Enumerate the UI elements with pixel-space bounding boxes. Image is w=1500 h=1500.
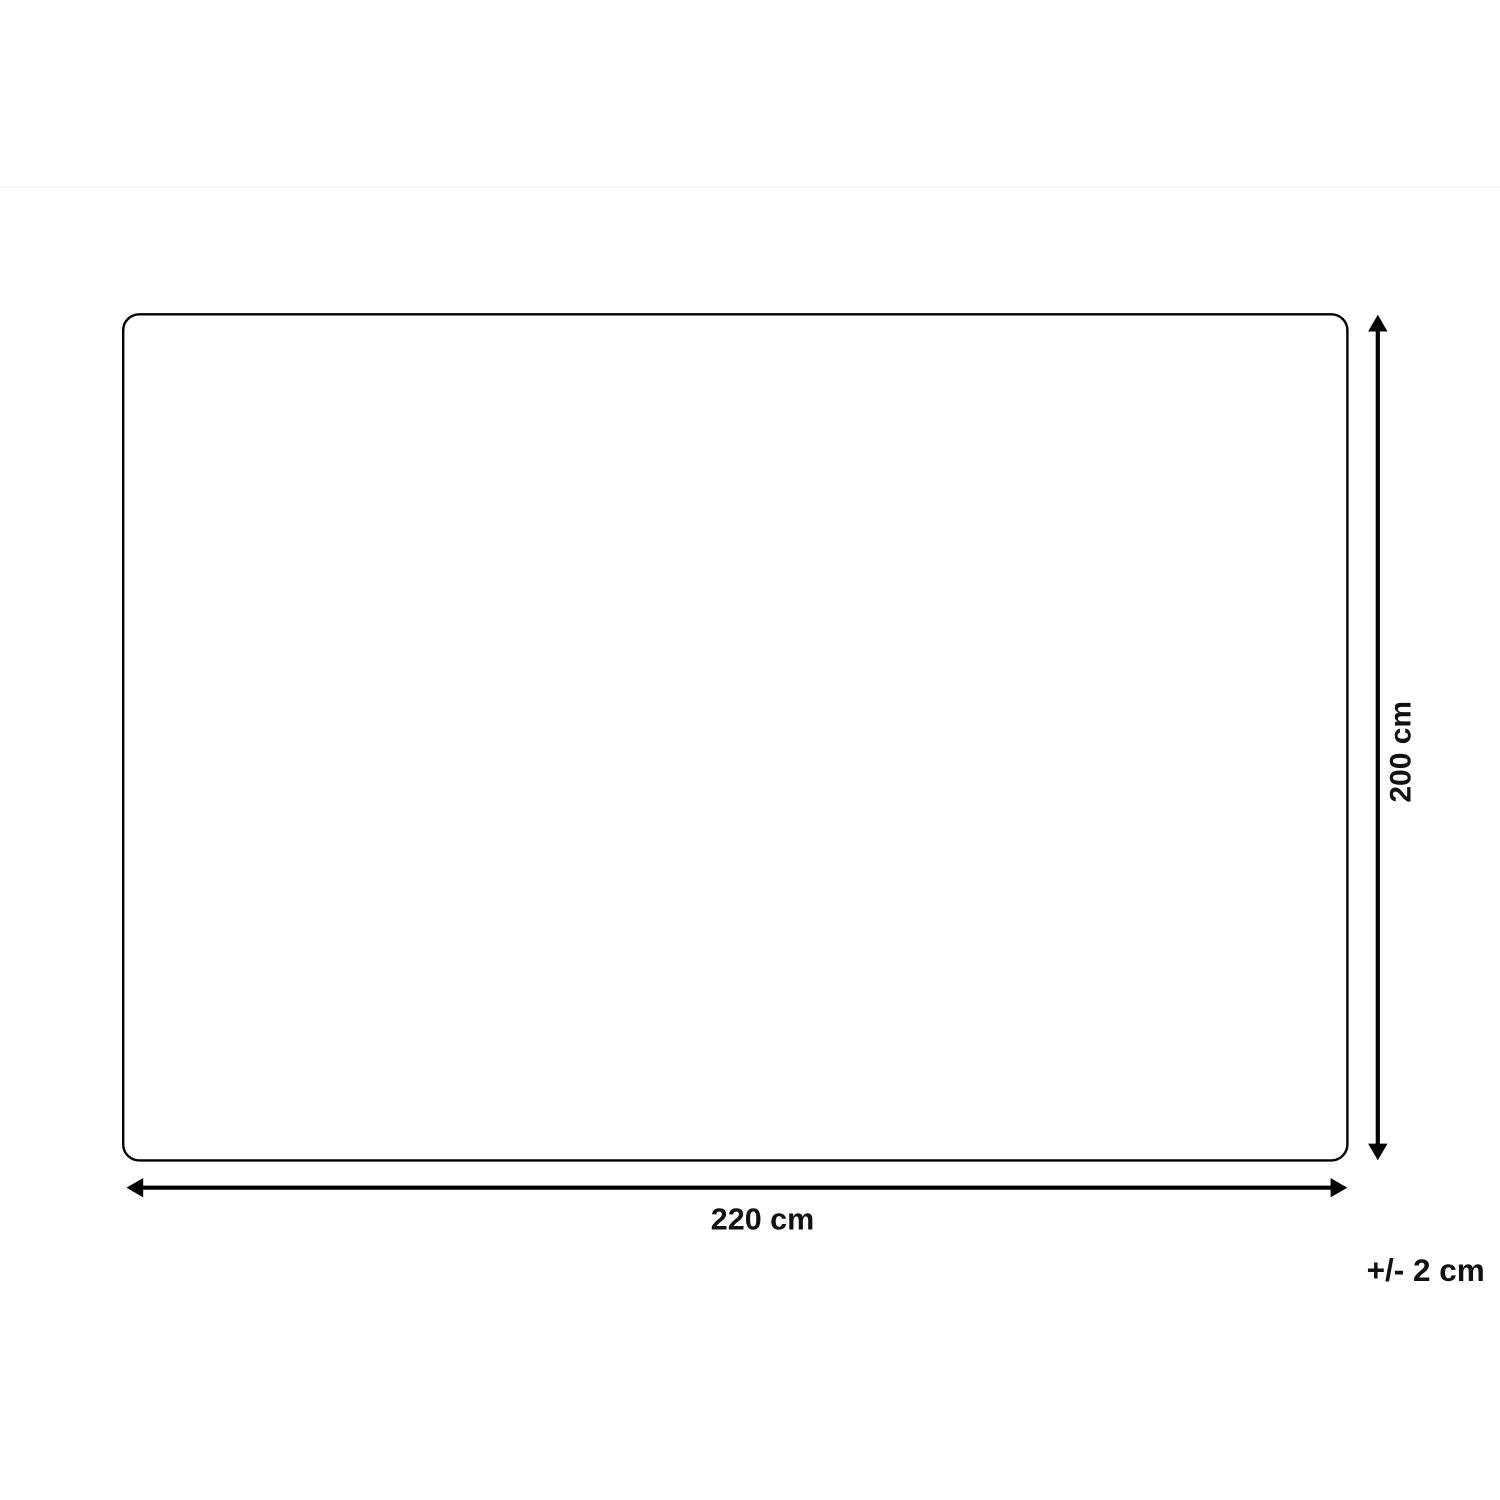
- svg-text:+/- 2 cm: +/- 2 cm: [1367, 1252, 1485, 1288]
- svg-text:200 cm: 200 cm: [1385, 701, 1418, 803]
- svg-text:220 cm: 220 cm: [711, 1202, 814, 1236]
